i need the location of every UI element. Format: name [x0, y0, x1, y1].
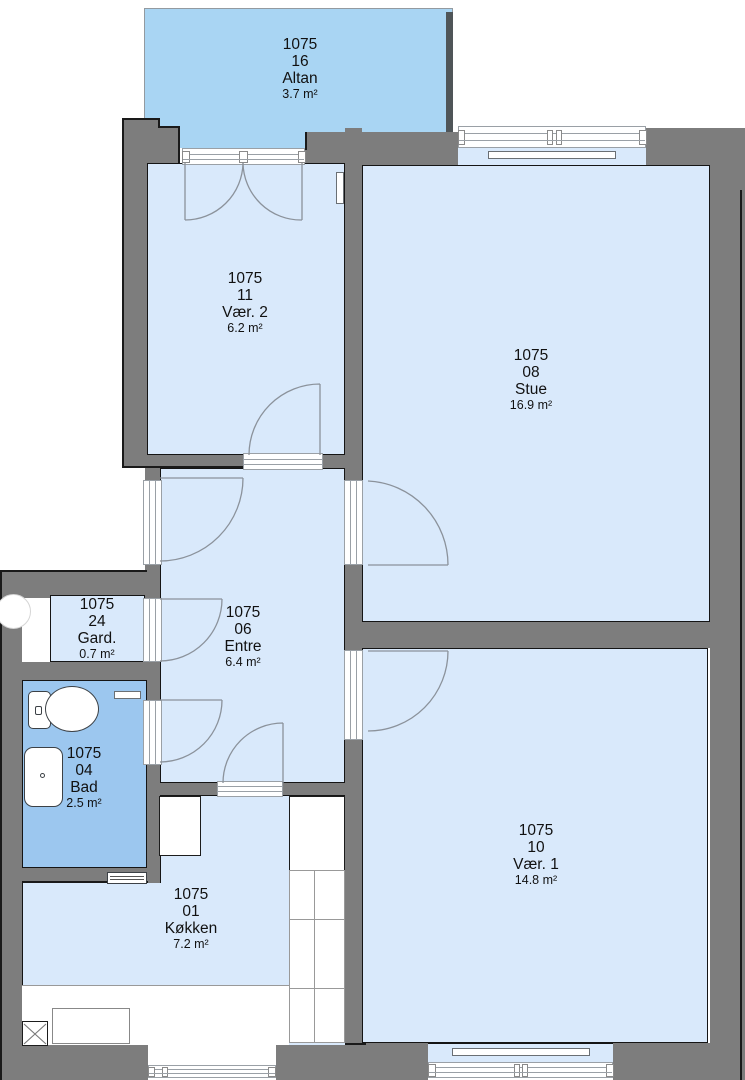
gard-door-threshold: [143, 598, 162, 662]
bad-door-threshold: [143, 700, 162, 765]
room-area: 16.9 m²: [510, 398, 552, 413]
room-unit: 1075: [66, 745, 101, 762]
kitchen-counter-right: [289, 870, 345, 1043]
room-area: 2.5 m²: [66, 796, 101, 811]
room-label-vaer2: 1075 11 Vær. 2 6.2 m²: [222, 270, 268, 336]
room-unit: 1075: [224, 604, 261, 621]
wall: [0, 662, 147, 682]
entrance-door-threshold: [143, 480, 162, 565]
room-number: 11: [222, 287, 268, 304]
wall-outline: [122, 118, 124, 468]
wall-outline: [740, 190, 742, 1080]
room-unit: 1075: [282, 36, 317, 53]
room-name: Stue: [510, 381, 552, 398]
stue-door-threshold: [344, 480, 363, 565]
room-area: 0.7 m²: [78, 647, 117, 662]
wall: [160, 126, 180, 167]
room-area: 7.2 m²: [165, 937, 218, 952]
kitchen-counter-tall: [289, 796, 345, 871]
room-unit: 1075: [510, 347, 552, 364]
room-label-altan: 1075 16 Altan 3.7 m²: [282, 36, 317, 102]
kitchen-table: [52, 1008, 130, 1044]
room-area: 6.2 m²: [222, 321, 268, 336]
room-label-bad: 1075 04 Bad 2.5 m²: [66, 745, 101, 811]
room-name: Bad: [66, 779, 101, 796]
room-name: Gard.: [78, 630, 117, 647]
room-label-entre: 1075 06 Entre 6.4 m²: [224, 604, 261, 670]
wall-outline: [158, 126, 180, 128]
room-name: Vær. 1: [513, 856, 559, 873]
room-number: 01: [165, 903, 218, 920]
wall-outline: [122, 118, 160, 120]
room-label-koekken: 1075 01 Køkken 7.2 m²: [165, 886, 218, 952]
koekken-door-threshold: [217, 781, 283, 797]
wall: [355, 1043, 428, 1080]
bath-shelf: [114, 691, 141, 699]
wall: [0, 1045, 148, 1080]
wall: [0, 570, 147, 598]
wall-outline: [178, 126, 180, 167]
radiator-stue: [488, 151, 616, 159]
room-label-stue: 1075 08 Stue 16.9 m²: [510, 347, 552, 413]
room-number: 24: [78, 613, 117, 630]
room-number: 08: [510, 364, 552, 381]
vaer1-window: [428, 1062, 613, 1078]
room-number: 06: [224, 621, 261, 638]
wall-outline: [305, 132, 307, 150]
room-area: 6.4 m²: [224, 655, 261, 670]
wall: [0, 570, 22, 1080]
floor-plan: 1075 16 Altan 3.7 m² 1075 11 Vær. 2 6.2 …: [0, 0, 745, 1080]
room-area: 14.8 m²: [513, 873, 559, 888]
room-label-gard: 1075 24 Gard. 0.7 m²: [78, 596, 117, 662]
room-name: Entre: [224, 638, 261, 655]
room-number: 16: [282, 53, 317, 70]
room-name: Køkken: [165, 920, 218, 937]
kitchen-counter-box: [159, 796, 201, 856]
room-unit: 1075: [222, 270, 268, 287]
wall: [122, 160, 147, 468]
wall-outline: [0, 570, 2, 1080]
vaer1-door-threshold: [344, 650, 363, 740]
room-label-vaer1: 1075 10 Vær. 1 14.8 m²: [513, 822, 559, 888]
koekken-window-frame: [148, 1065, 276, 1078]
radiator-vaer2: [336, 172, 344, 204]
vaer2-door-threshold: [243, 453, 323, 470]
column-icon: [0, 594, 31, 629]
wall: [362, 622, 710, 648]
radiator-vaer1: [452, 1048, 590, 1056]
room-number: 04: [66, 762, 101, 779]
wall: [613, 1043, 745, 1080]
wall-outline: [0, 570, 147, 572]
wall: [345, 128, 362, 1045]
room-number: 10: [513, 839, 559, 856]
room-area: 3.7 m²: [282, 87, 317, 102]
balcony-door-threshold: [182, 148, 305, 165]
room-unit: 1075: [513, 822, 559, 839]
door-grate: [107, 872, 147, 884]
room-name: Altan: [282, 70, 317, 87]
stue-north-window: [458, 126, 646, 148]
room-unit: 1075: [78, 596, 117, 613]
appliance-x-icon: [22, 1021, 48, 1046]
room-name: Vær. 2: [222, 304, 268, 321]
toilet-flush-dot: [35, 706, 42, 715]
sink-drain-dot: [40, 773, 45, 778]
room-unit: 1075: [165, 886, 218, 903]
wall: [305, 132, 458, 167]
toilet-icon: [45, 686, 99, 732]
balcony-wall-stub: [446, 12, 453, 148]
